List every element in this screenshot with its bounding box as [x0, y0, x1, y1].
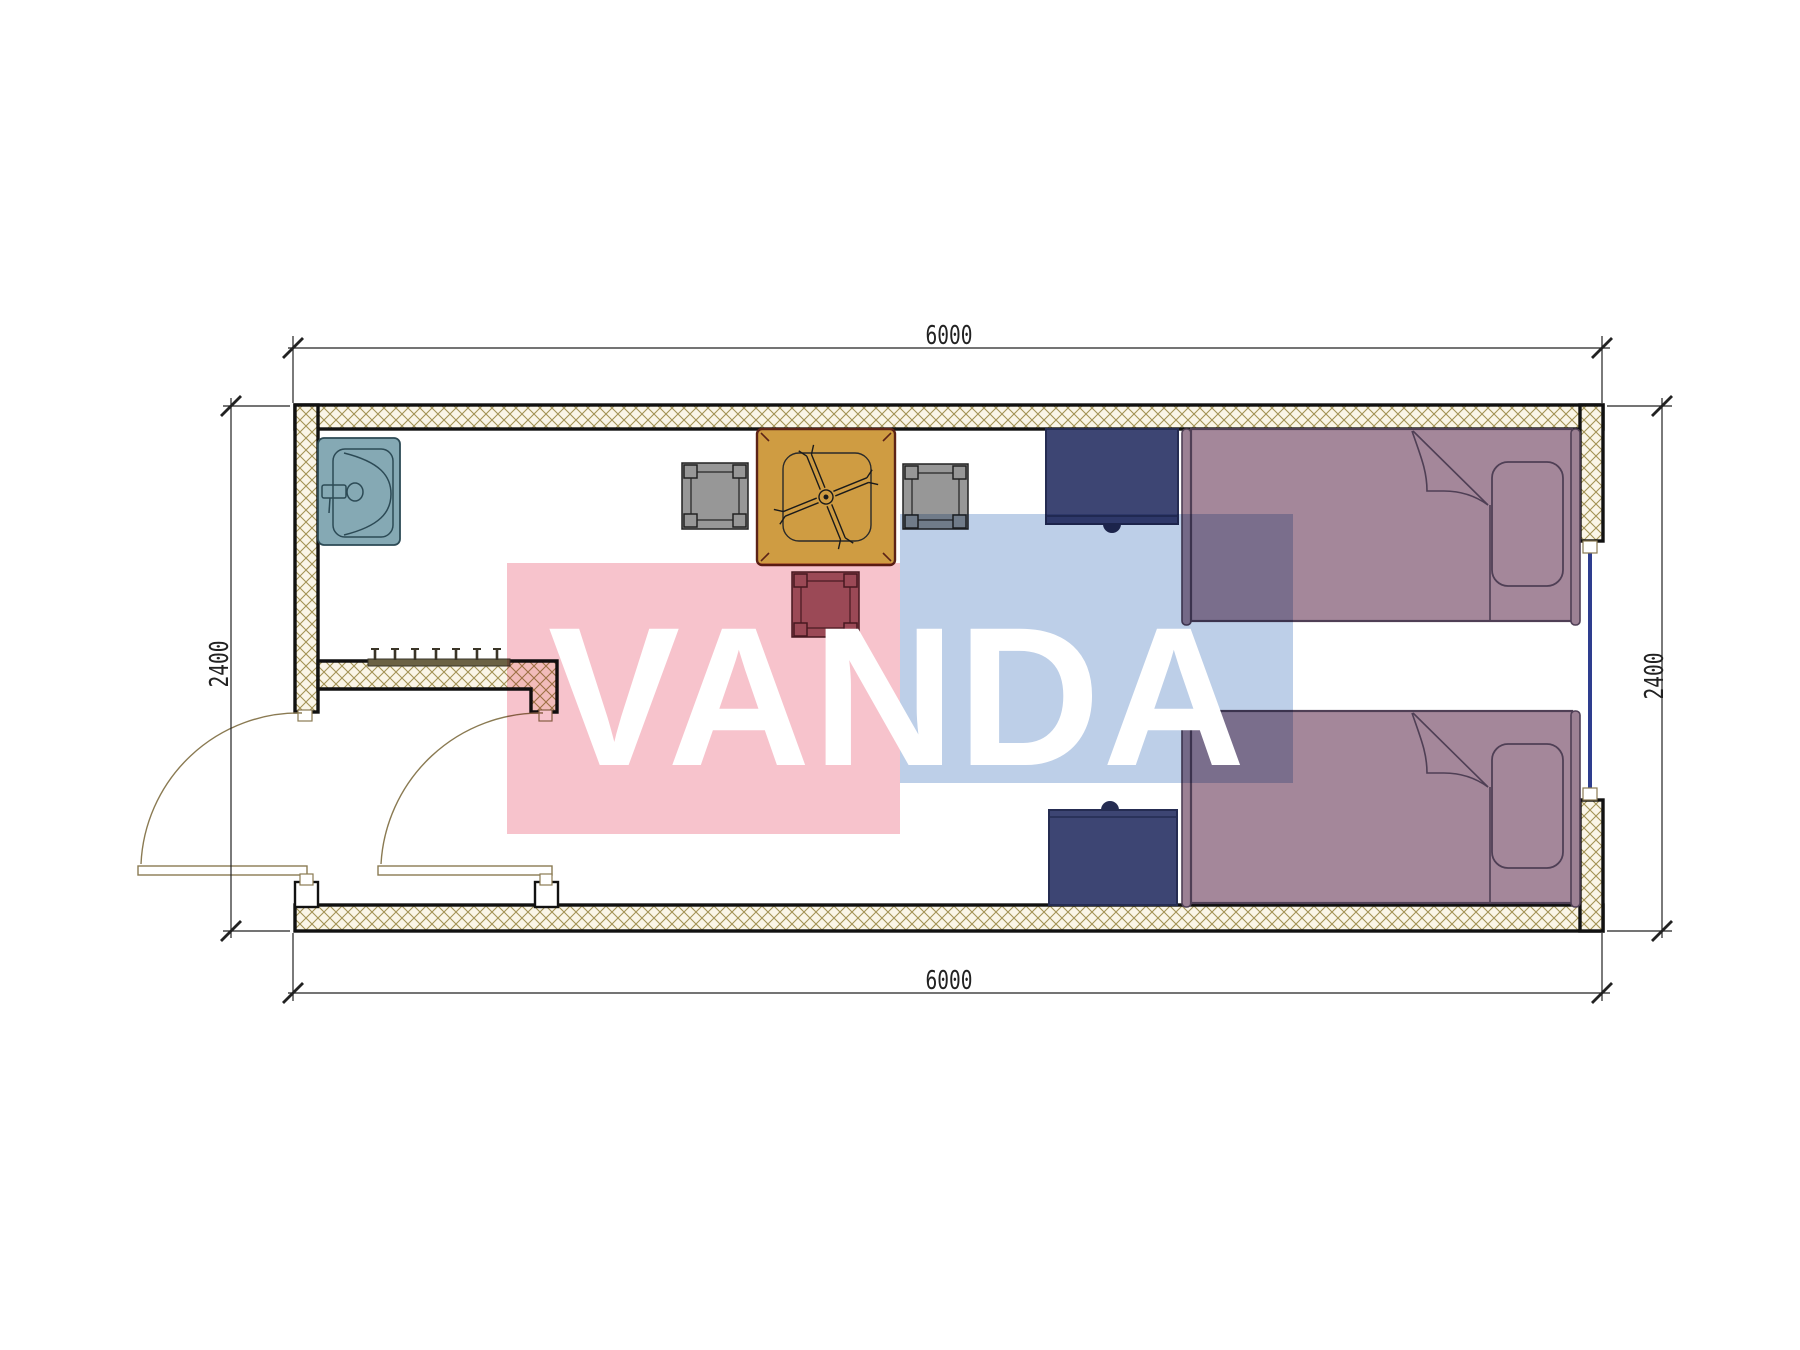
window: [1583, 541, 1597, 800]
doors: [138, 710, 558, 907]
door-hinge-jamb-left: [300, 874, 313, 885]
door-hinge-jamb-inner: [540, 874, 552, 885]
coat-rack: [368, 649, 510, 666]
watermark-text: VANDA: [548, 598, 1247, 796]
exterior-door-leaf: [138, 866, 307, 875]
interior-door-leaf: [378, 866, 552, 875]
wall-top: [295, 405, 1603, 429]
coat-hooks-icon: [371, 649, 501, 660]
dimension-right-label: 2400: [1640, 653, 1670, 700]
nightstand-bottom: [1049, 801, 1177, 905]
dimension-top-label: 6000: [926, 321, 973, 351]
window-jamb-bottom: [1583, 788, 1597, 800]
table: [757, 428, 895, 566]
wall-right-lower: [1580, 800, 1603, 931]
chair-gray-left: [682, 463, 748, 529]
floor-plan-page: 6000 6000 2400 2400 VANDA: [0, 0, 1800, 1350]
dimension-left-label: 2400: [205, 641, 235, 688]
dimension-bottom-label: 6000: [926, 966, 973, 996]
door-jamb-block-inner: [535, 882, 558, 907]
wall-bottom: [295, 905, 1603, 931]
door-jamb-wall-end: [298, 710, 312, 721]
window-glass: [1588, 553, 1592, 788]
exterior-door-arc: [141, 713, 302, 864]
door-jamb-block-left: [295, 882, 318, 907]
wall-left: [295, 405, 318, 712]
sink: [318, 438, 400, 545]
wall-right-upper: [1580, 405, 1603, 541]
window-jamb-top: [1583, 541, 1597, 553]
